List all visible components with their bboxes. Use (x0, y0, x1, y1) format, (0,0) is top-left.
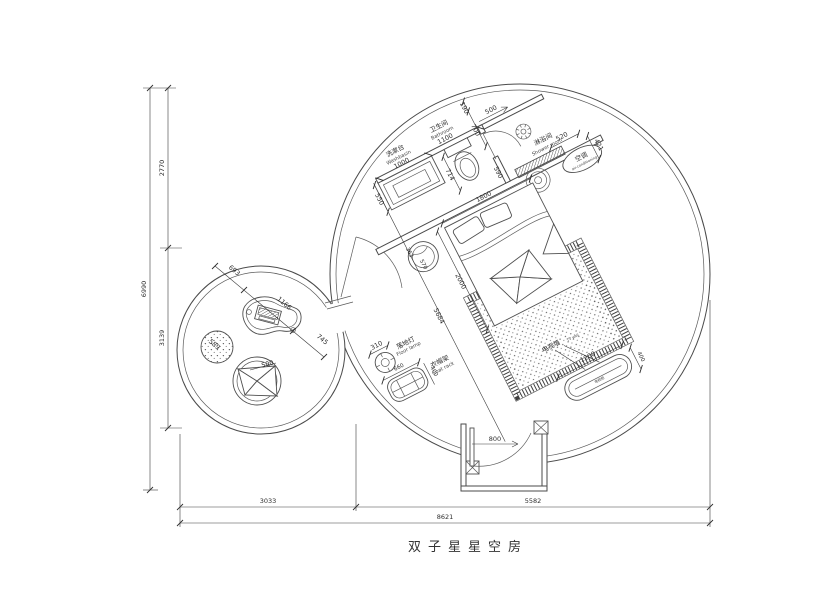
dim-width-total: 8621 (437, 513, 454, 521)
passage-opening (322, 303, 352, 333)
dim-height-b: 3139 (158, 330, 166, 347)
lounge-stool: 589 (201, 331, 233, 363)
dim-width-a: 3033 (260, 497, 277, 505)
dim-height-a: 2770 (158, 160, 166, 177)
dim-width-b: 5582 (525, 497, 542, 505)
dimensions-left: 6990 2770 3139 (140, 85, 182, 493)
plan-title: 双子星星空房 (408, 539, 528, 555)
blanket-basket: 500 (233, 357, 281, 405)
floor-plan-sheet: 800 (0, 0, 837, 592)
entry-vestibule: 800 (461, 421, 548, 491)
vestibule-wall-left (461, 424, 466, 490)
dim-height-total: 6990 (140, 281, 148, 298)
dim-entry-door: 800 (489, 435, 501, 443)
entry-door-leaf (470, 428, 474, 466)
vestibule-floor (464, 422, 544, 488)
vestibule-wall-bottom (461, 486, 547, 491)
floor-plan-canvas: 800 (0, 0, 837, 592)
